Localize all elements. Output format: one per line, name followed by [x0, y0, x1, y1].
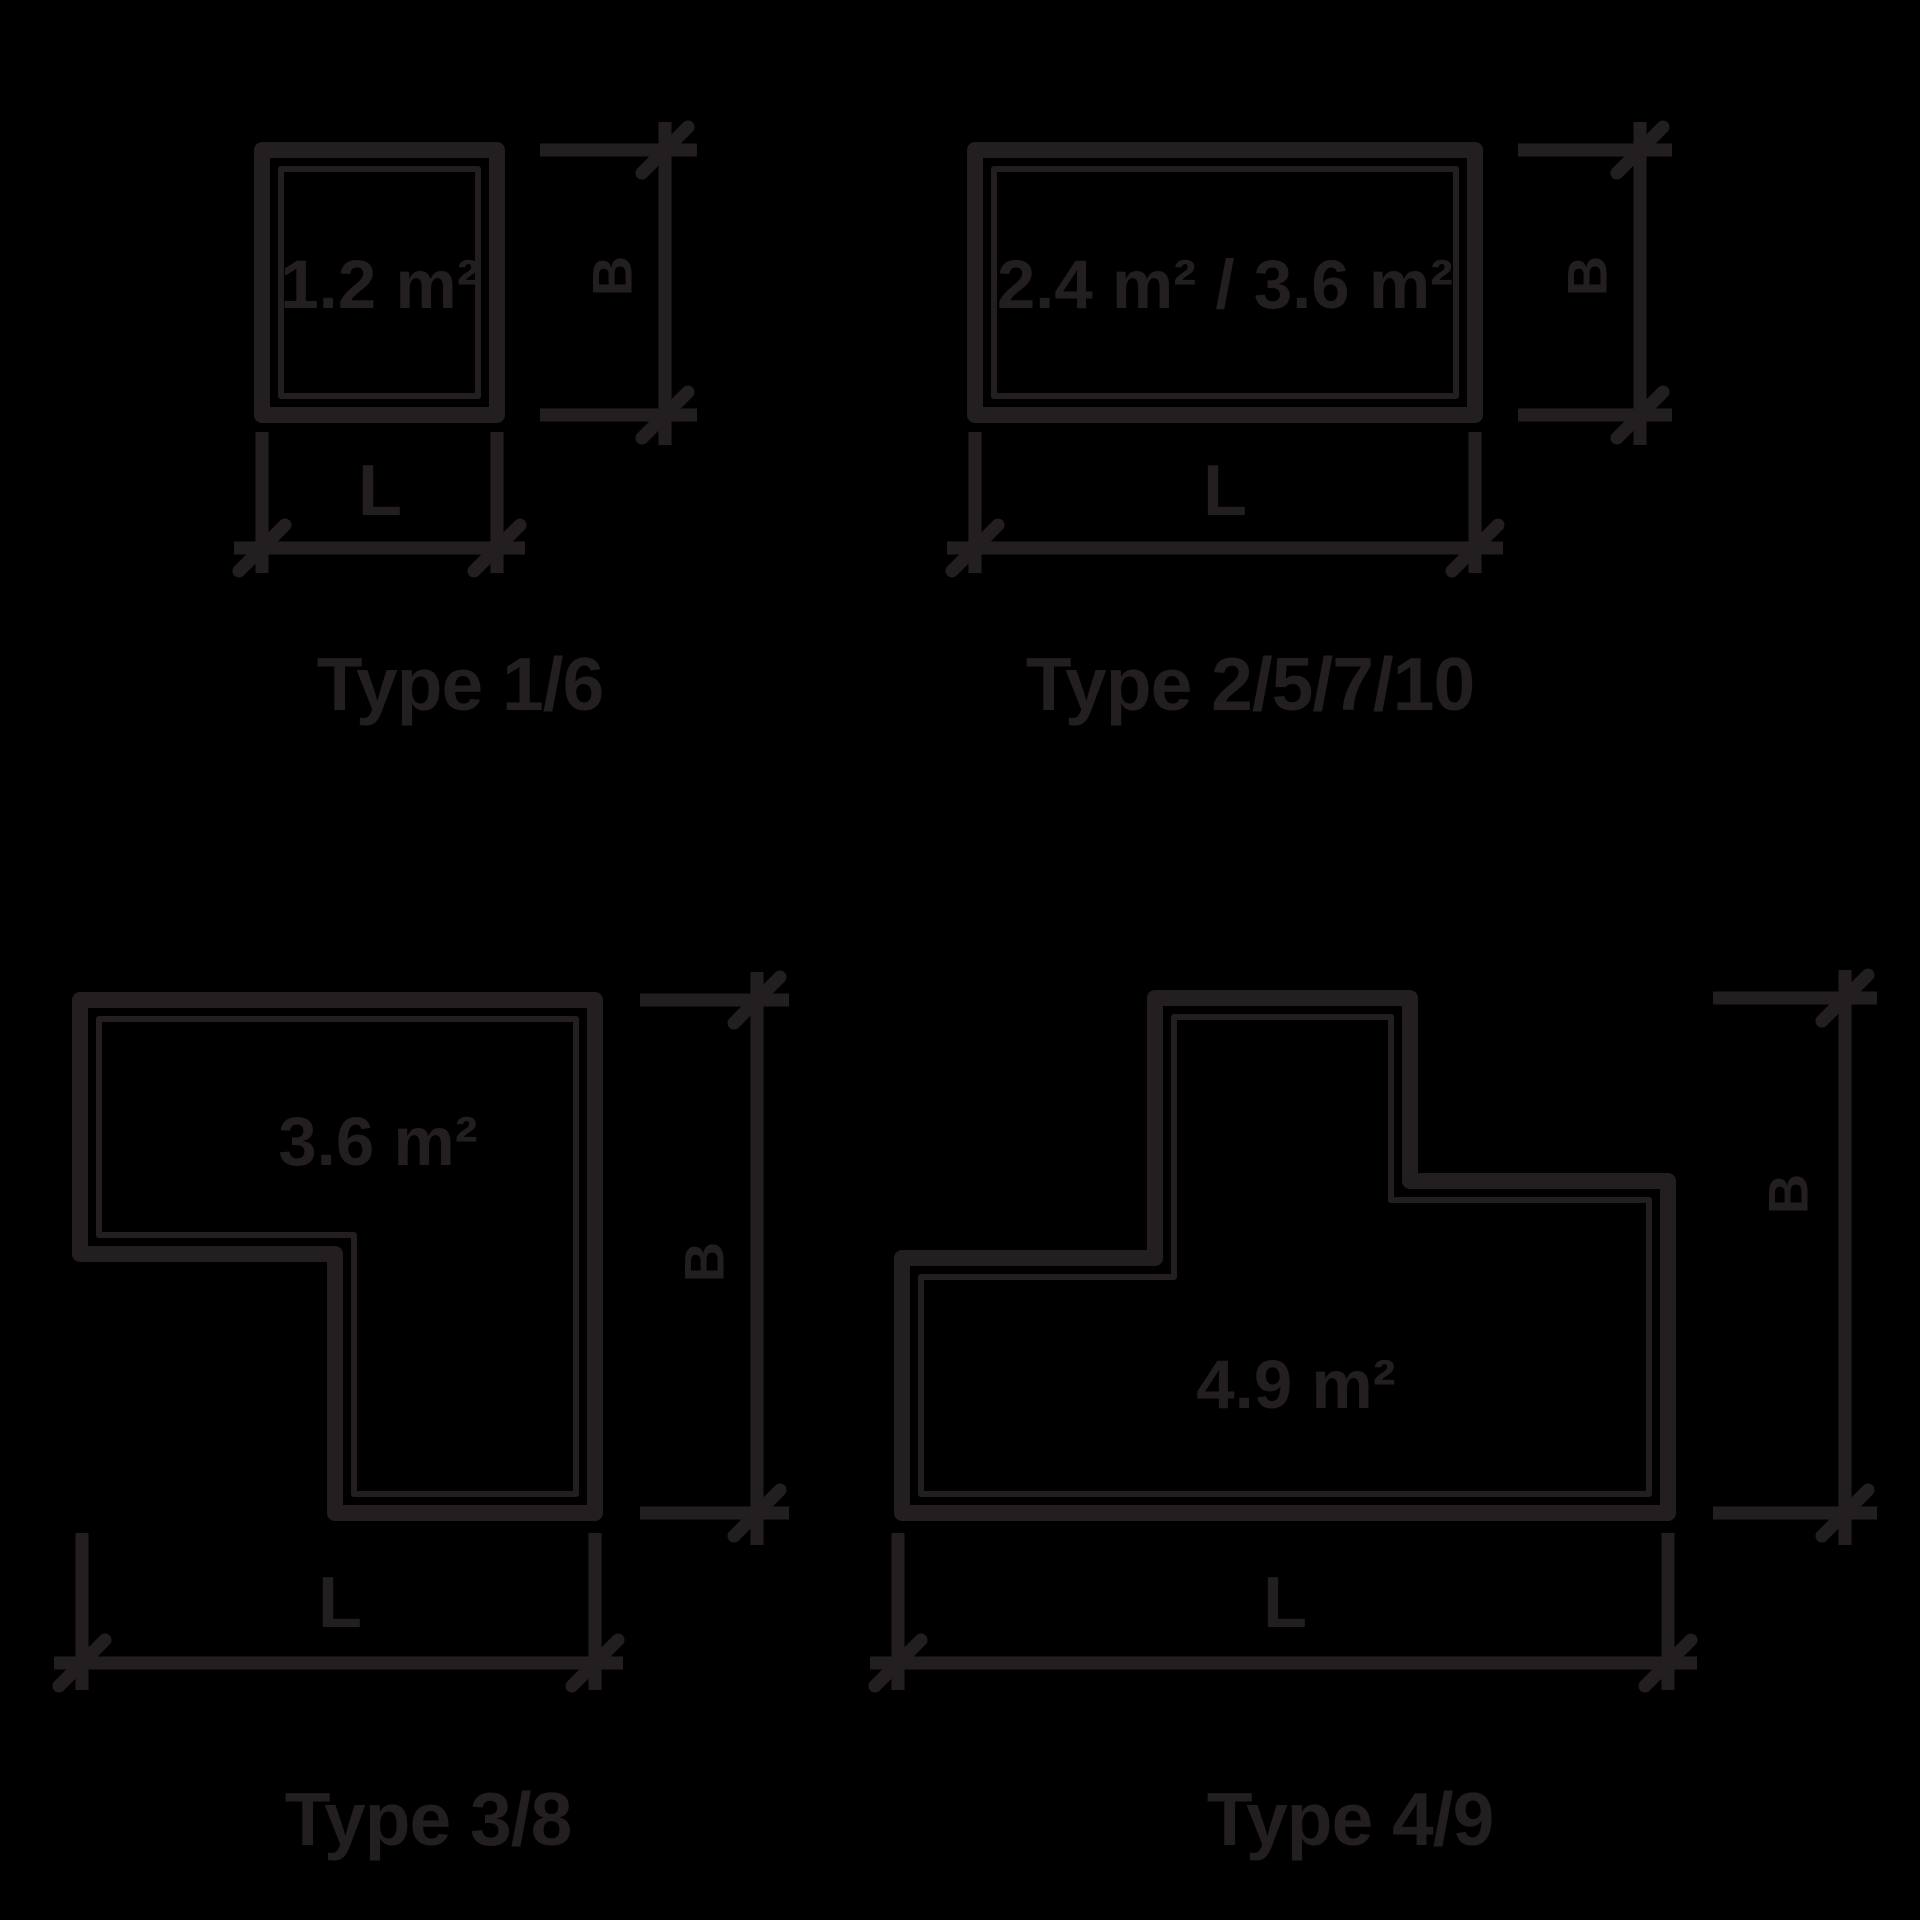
diagram-canvas: 1.2 m² B L Type 1/6 2 — [0, 0, 1920, 1920]
diagram-caption: Type 2/5/7/10 — [1026, 642, 1474, 726]
height-dimension: B — [1518, 122, 1672, 445]
storage-type-dimension-diagram: 1.2 m² B L Type 1/6 2 — [0, 0, 1920, 1920]
width-dimension: L — [947, 432, 1503, 573]
area-label: 1.2 m² — [280, 246, 479, 323]
width-dimension-label: L — [1263, 1563, 1307, 1643]
area-label: 3.6 m² — [278, 1103, 477, 1180]
t-shape-outline — [902, 998, 1668, 1513]
height-dimension: B — [540, 122, 697, 445]
height-dimension-label: B — [1757, 1174, 1820, 1214]
height-dimension: B — [640, 972, 789, 1545]
diagram-type-1-6: 1.2 m² B L Type 1/6 — [234, 122, 697, 726]
width-dimension-label: L — [1203, 451, 1247, 531]
diagram-type-3-8: 3.6 m² B L Type 3/8 — [54, 972, 789, 1861]
diagram-type-2-5-7-10: 2.4 m² / 3.6 m² B L Type 2/5/7/10 — [947, 122, 1672, 726]
height-dimension-label: B — [581, 256, 644, 296]
l-shape-outline — [80, 1000, 595, 1513]
area-label: 4.9 m² — [1196, 1346, 1395, 1423]
height-dimension: B — [1713, 970, 1877, 1545]
width-dimension: L — [234, 432, 525, 573]
width-dimension-label: L — [358, 451, 402, 531]
diagram-caption: Type 3/8 — [285, 1777, 572, 1861]
width-dimension: L — [870, 1533, 1697, 1690]
width-dimension: L — [54, 1533, 623, 1690]
diagram-caption: Type 1/6 — [317, 642, 604, 726]
height-dimension-label: B — [1556, 256, 1619, 296]
diagram-type-4-9: 4.9 m² B L Type 4/9 — [870, 970, 1877, 1861]
diagram-caption: Type 4/9 — [1207, 1777, 1494, 1861]
height-dimension-label: B — [673, 1242, 736, 1282]
area-label: 2.4 m² / 3.6 m² — [997, 246, 1453, 323]
width-dimension-label: L — [318, 1563, 362, 1643]
